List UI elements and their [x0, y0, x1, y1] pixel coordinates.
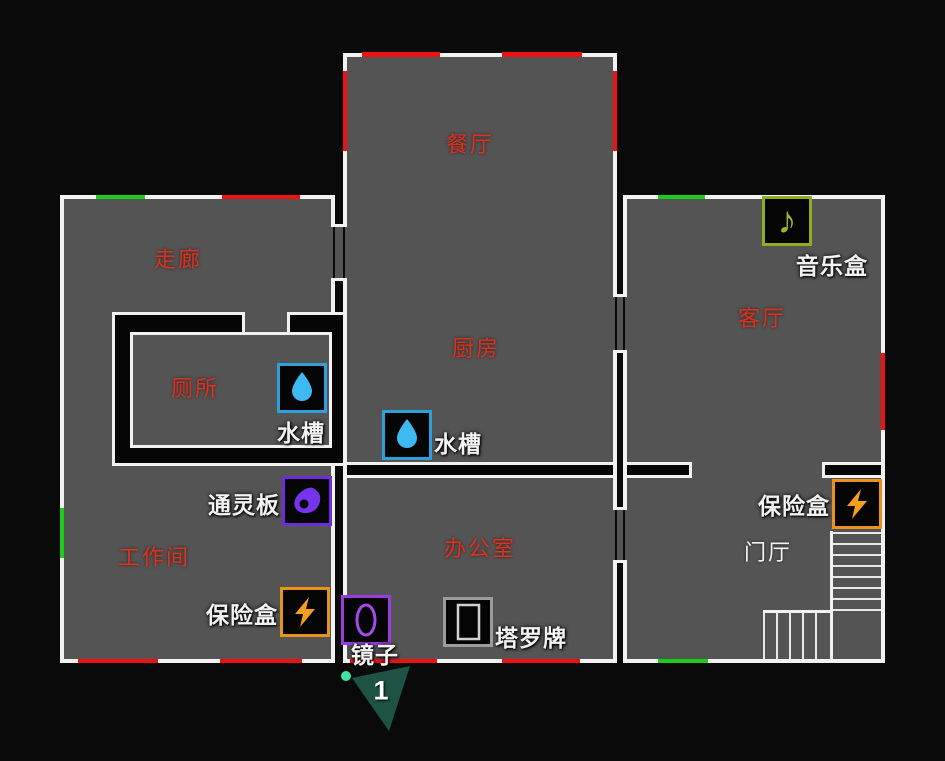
door-office-foyer — [617, 510, 623, 560]
room-label-corridor: 走廊 — [154, 242, 202, 274]
player-number: 1 — [373, 676, 388, 707]
room-label-office: 办公室 — [444, 531, 516, 563]
stair-tread — [815, 613, 817, 659]
stair-tread — [763, 613, 765, 659]
ouija-board-label: 通灵板 — [208, 486, 280, 520]
sink-toilet-icon — [277, 363, 327, 413]
wall-middle-right-3 — [613, 560, 617, 663]
room-label-workshop: 工作间 — [118, 540, 190, 572]
room-label-toilet: 厕所 — [171, 371, 219, 403]
exit-door-corridor-top — [96, 195, 145, 199]
stair-tread — [776, 613, 778, 659]
wall-left-block-left — [60, 195, 64, 663]
window-workshop-bottom-1 — [78, 659, 158, 663]
door-kitchen-living — [617, 297, 623, 350]
exit-door-foyer-bottom — [658, 659, 708, 663]
wall-right-block-left-2 — [623, 350, 627, 510]
stair-tread — [833, 576, 881, 578]
door-corridor-kitchen-cap-bottom — [331, 278, 347, 281]
door-corridor-kitchen — [335, 227, 343, 278]
window-dining-right — [613, 71, 617, 151]
window-dining-top-1 — [362, 52, 440, 57]
wall-right-block-left-3 — [623, 560, 627, 663]
stair-tread — [802, 613, 804, 659]
tarot-cards-icon — [443, 597, 493, 647]
music-box-label: 音乐盒 — [796, 247, 868, 281]
toilet-wall-outline-top2 — [287, 312, 343, 315]
wall-right-block-left-1 — [623, 195, 627, 297]
door-office-foyer-cap-bottom — [613, 560, 627, 563]
door-corridor-kitchen-cap-top — [331, 224, 347, 227]
wall-living-foyer-left — [627, 462, 692, 478]
wall-left-block-right-upper — [331, 195, 335, 227]
window-dining-top-2 — [502, 52, 582, 57]
player-dot — [341, 671, 351, 681]
exit-door-living-top — [658, 195, 705, 199]
wall-living-foyer-right — [822, 462, 881, 478]
lightning-bolt-glyph — [841, 487, 873, 521]
stair-tread — [789, 613, 791, 659]
room-label-foyer: 门厅 — [744, 535, 792, 567]
ouija-board-icon — [282, 476, 332, 526]
room-label-kitchen: 厨房 — [452, 331, 500, 363]
music-note-glyph: ♪ — [778, 202, 797, 240]
window-corridor-top — [222, 195, 300, 199]
wall-middle-right-2 — [613, 350, 617, 510]
tarot-cards-label: 塔罗牌 — [495, 619, 567, 653]
sink-toilet-label: 水槽 — [277, 414, 325, 448]
exit-door-workshop-left — [60, 508, 64, 558]
sink-kitchen-label: 水槽 — [434, 425, 482, 459]
fuse-box-foyer-label: 保险盒 — [758, 487, 830, 521]
water-drop-glyph — [391, 417, 423, 453]
stair-tread — [833, 543, 881, 545]
fuse-box-foyer-icon — [832, 479, 882, 529]
mirror-glyph — [350, 601, 382, 639]
fuse-box-workshop-icon — [280, 587, 330, 637]
door-kitchen-living-cap-bottom — [613, 350, 627, 353]
sink-kitchen-icon — [382, 410, 432, 460]
room-label-dining: 餐厅 — [446, 127, 494, 159]
door-kitchen-living-cap-top — [613, 294, 627, 297]
lightning-bolt-glyph — [289, 595, 321, 629]
stair-tread — [833, 587, 881, 589]
stair-tread — [833, 532, 881, 534]
window-office-bottom-2 — [502, 659, 580, 663]
window-workshop-bottom-2 — [220, 659, 302, 663]
stairs-lower-edge — [763, 610, 833, 613]
window-living-right — [881, 353, 885, 430]
stair-tread — [833, 609, 881, 611]
tarot-card-glyph — [453, 602, 483, 642]
planchette-glyph — [290, 484, 324, 518]
toilet-wall-outline-top — [112, 312, 245, 315]
stair-tread — [833, 565, 881, 567]
room-label-living-room: 客厅 — [738, 301, 786, 333]
wall-kitchen-office — [347, 462, 613, 478]
door-office-foyer-cap-top — [613, 507, 627, 510]
toilet-wall-outline-bottom — [112, 463, 343, 466]
music-box-icon: ♪ — [762, 196, 812, 246]
fuse-box-workshop-label: 保险盒 — [206, 596, 278, 630]
stair-tread — [833, 554, 881, 556]
window-dining-left — [343, 71, 347, 151]
stairs-landing-edge — [830, 531, 833, 659]
floor-map: 餐厅 走廊 厨房 厕所 客厅 工作间 办公室 门厅 ♪ 音乐盒 水槽 水槽 通灵… — [0, 0, 945, 761]
stair-tread — [833, 598, 881, 600]
toilet-wall-outline-left — [112, 312, 115, 466]
water-drop-glyph — [286, 370, 318, 406]
